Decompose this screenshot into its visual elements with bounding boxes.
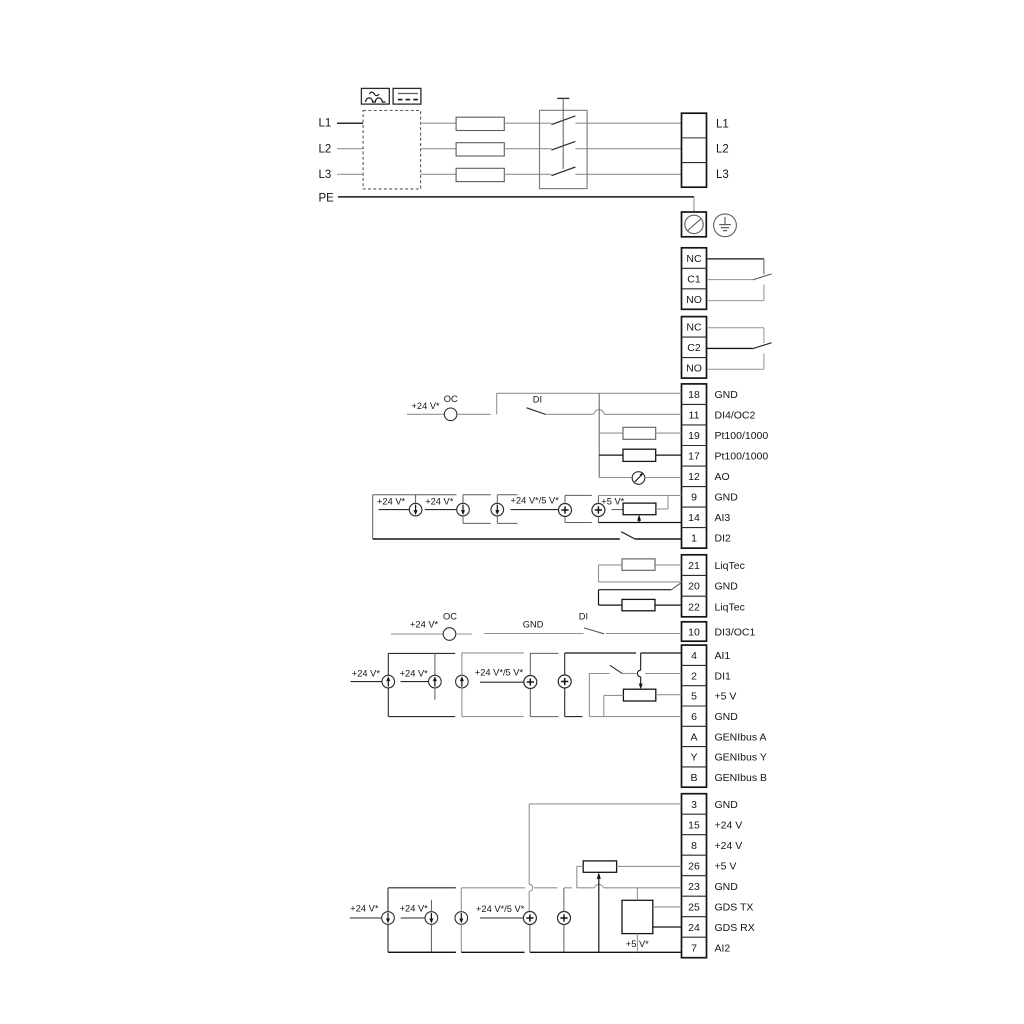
svg-text:NC: NC bbox=[686, 253, 702, 265]
svg-text:+24 V*: +24 V* bbox=[400, 668, 429, 678]
svg-text:26: 26 bbox=[688, 860, 700, 872]
svg-text:+24 V*/5 V*: +24 V*/5 V* bbox=[476, 904, 525, 914]
svg-text:DI: DI bbox=[579, 612, 588, 622]
svg-text:L1: L1 bbox=[716, 119, 729, 131]
svg-text:2: 2 bbox=[691, 670, 697, 682]
svg-text:AI1: AI1 bbox=[715, 650, 731, 662]
svg-text:19: 19 bbox=[688, 430, 700, 442]
svg-text:+24 V*: +24 V* bbox=[410, 620, 439, 630]
svg-text:Y: Y bbox=[690, 752, 697, 764]
svg-text:25: 25 bbox=[688, 901, 700, 913]
svg-text:C1: C1 bbox=[687, 273, 701, 285]
svg-text:12: 12 bbox=[688, 471, 700, 483]
svg-text:DI3/OC1: DI3/OC1 bbox=[715, 626, 756, 638]
svg-text:AI3: AI3 bbox=[715, 512, 731, 524]
svg-text:24: 24 bbox=[688, 922, 700, 934]
svg-text:L3: L3 bbox=[319, 169, 332, 181]
svg-text:L3: L3 bbox=[716, 169, 729, 181]
svg-text:Pt100/1000: Pt100/1000 bbox=[715, 430, 769, 442]
svg-text:+24 V*: +24 V* bbox=[377, 497, 406, 507]
svg-text:+24 V*/5 V*: +24 V*/5 V* bbox=[475, 668, 524, 678]
svg-text:A: A bbox=[690, 731, 697, 743]
svg-text:LiqTec: LiqTec bbox=[715, 601, 745, 613]
svg-text:9: 9 bbox=[691, 492, 697, 504]
svg-text:+24 V*: +24 V* bbox=[400, 904, 429, 914]
svg-text:+24 V: +24 V bbox=[715, 819, 743, 831]
svg-text:17: 17 bbox=[688, 451, 700, 463]
svg-text:15: 15 bbox=[688, 819, 700, 831]
svg-text:LiqTec: LiqTec bbox=[715, 560, 745, 572]
svg-text:+24 V*: +24 V* bbox=[352, 669, 381, 679]
svg-text:GND: GND bbox=[715, 881, 739, 893]
svg-text:GND: GND bbox=[715, 799, 739, 811]
svg-text:+5 V*: +5 V* bbox=[601, 496, 624, 506]
svg-text:GND: GND bbox=[715, 711, 739, 723]
svg-text:OC: OC bbox=[443, 612, 457, 622]
svg-text:GND: GND bbox=[715, 581, 739, 593]
svg-text:10: 10 bbox=[688, 626, 700, 638]
svg-text:GENIbus Y: GENIbus Y bbox=[715, 752, 767, 764]
svg-text:21: 21 bbox=[688, 560, 700, 572]
svg-text:5: 5 bbox=[691, 691, 697, 703]
svg-text:L2: L2 bbox=[716, 143, 729, 155]
svg-text:1: 1 bbox=[691, 533, 697, 545]
svg-text:L2: L2 bbox=[319, 143, 332, 155]
svg-text:20: 20 bbox=[688, 581, 700, 593]
svg-text:+5 V: +5 V bbox=[715, 691, 737, 703]
svg-text:GENIbus A: GENIbus A bbox=[715, 731, 767, 743]
svg-text:NC: NC bbox=[686, 322, 702, 334]
svg-text:DI1: DI1 bbox=[715, 670, 732, 682]
svg-text:B: B bbox=[690, 772, 697, 784]
svg-text:3: 3 bbox=[691, 799, 697, 811]
svg-text:22: 22 bbox=[688, 601, 700, 613]
svg-text:NO: NO bbox=[686, 294, 702, 306]
svg-text:11: 11 bbox=[689, 409, 700, 421]
svg-text:+5 V: +5 V bbox=[715, 860, 737, 872]
svg-text:8: 8 bbox=[691, 840, 697, 852]
svg-text:GDS RX: GDS RX bbox=[715, 922, 755, 934]
svg-text:+5 V*: +5 V* bbox=[626, 939, 649, 949]
svg-text:GND: GND bbox=[715, 389, 739, 401]
svg-text:L1: L1 bbox=[319, 118, 332, 130]
svg-text:PE: PE bbox=[319, 192, 335, 204]
svg-text:18: 18 bbox=[688, 389, 700, 401]
svg-text:AO: AO bbox=[715, 471, 730, 483]
svg-text:7: 7 bbox=[691, 942, 697, 954]
svg-text:GND: GND bbox=[715, 492, 739, 504]
svg-text:GENIbus B: GENIbus B bbox=[715, 772, 768, 784]
svg-text:+24 V: +24 V bbox=[715, 840, 743, 852]
svg-text:GDS TX: GDS TX bbox=[715, 901, 754, 913]
svg-text:23: 23 bbox=[688, 881, 700, 893]
svg-text:OC: OC bbox=[444, 394, 458, 404]
svg-text:+24 V*: +24 V* bbox=[350, 904, 379, 914]
svg-text:4: 4 bbox=[691, 650, 697, 662]
svg-text:DI2: DI2 bbox=[715, 533, 732, 545]
svg-text:+24 V*/5 V*: +24 V*/5 V* bbox=[511, 496, 560, 506]
svg-text:14: 14 bbox=[688, 512, 700, 524]
svg-text:NO: NO bbox=[686, 363, 702, 375]
svg-text:Pt100/1000: Pt100/1000 bbox=[715, 451, 769, 463]
svg-text:DI4/OC2: DI4/OC2 bbox=[715, 409, 756, 421]
svg-text:AI2: AI2 bbox=[715, 942, 731, 954]
svg-text:6: 6 bbox=[691, 711, 697, 723]
svg-text:C2: C2 bbox=[687, 342, 701, 354]
svg-text:DI: DI bbox=[533, 394, 542, 404]
svg-text:+24 V*: +24 V* bbox=[425, 497, 454, 507]
svg-text:GND: GND bbox=[523, 620, 544, 630]
svg-text:+24 V*: +24 V* bbox=[412, 401, 441, 411]
